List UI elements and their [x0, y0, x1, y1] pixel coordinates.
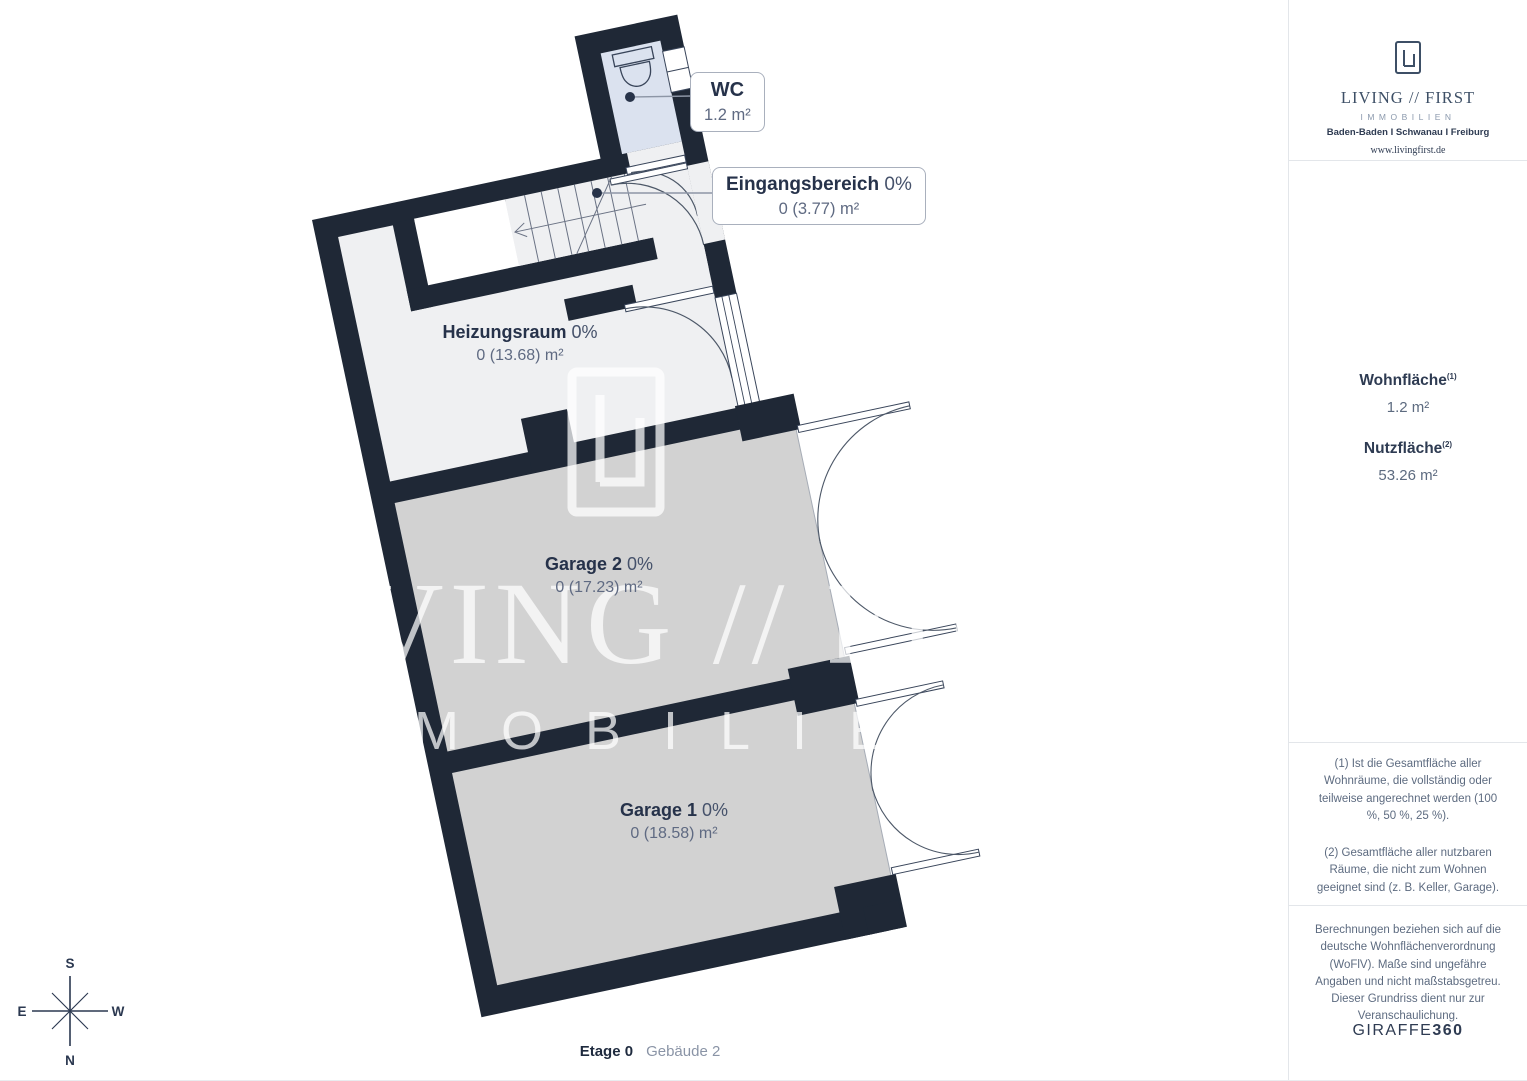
- nutzflaeche-label: Nutzfläche(2): [1289, 440, 1527, 458]
- footnote-2: (2) Gesamtfläche aller nutzbaren Räume, …: [1313, 845, 1503, 897]
- footnote-1: (1) Ist die Gesamtfläche aller Wohnräume…: [1313, 756, 1503, 825]
- agency-website: www.livingfirst.de: [1289, 145, 1527, 156]
- room-name: Garage 1: [620, 800, 697, 820]
- room-percent: 0%: [884, 174, 911, 195]
- room-name: Garage 2: [545, 554, 622, 574]
- agency-locations: Baden-Baden I Schwanau I Freiburg: [1289, 127, 1527, 138]
- nutzflaeche-text: Nutzfläche: [1364, 440, 1442, 457]
- compass-rose: S N E W: [14, 952, 126, 1070]
- agency-subtitle: IMMOBILIEN: [1289, 112, 1527, 122]
- sidebar-divider-2: [1289, 742, 1527, 743]
- room-area: 1.2 m²: [704, 105, 751, 126]
- room-area: 0 (13.68) m²: [400, 346, 640, 366]
- wohnflaeche-value: 1.2 m²: [1289, 399, 1527, 416]
- room-label-wc: WC 1.2 m²: [690, 72, 765, 132]
- room-label-eingangsbereich: Eingangsbereich 0% 0 (3.77) m²: [712, 167, 926, 225]
- giraffe-text: GIRAFFE: [1352, 1022, 1432, 1039]
- room-percent: 0%: [627, 554, 653, 574]
- room-label-garage1: Garage 1 0% 0 (18.58) m²: [554, 799, 794, 844]
- room-name: Eingangsbereich: [726, 174, 879, 195]
- compass-south: S: [65, 956, 74, 971]
- disclaimer-text: Berechnungen beziehen sich auf die deuts…: [1313, 922, 1503, 1026]
- label-leaders: [0, 0, 1288, 1080]
- plan-area: LIVING // FIRST IMMOBILIEN WC 1.2 m² Ein…: [0, 0, 1288, 1080]
- footnotes: (1) Ist die Gesamtfläche aller Wohnräume…: [1289, 756, 1527, 917]
- wohnflaeche-text: Wohnfläche: [1359, 372, 1447, 389]
- compass-east: E: [17, 1004, 26, 1019]
- floor-label: Etage 0: [580, 1043, 633, 1060]
- area-summary: Wohnfläche(1) 1.2 m² Nutzfläche(2) 53.26…: [1289, 372, 1527, 508]
- compass-west: W: [112, 1004, 125, 1019]
- wohnflaeche-label: Wohnfläche(1): [1289, 372, 1527, 390]
- sidebar-divider-1: [1289, 160, 1527, 161]
- room-name: Heizungsraum: [442, 322, 566, 342]
- compass-north: N: [65, 1053, 75, 1068]
- room-label-garage2: Garage 2 0% 0 (17.23) m²: [479, 553, 719, 598]
- agency-name: LIVING // FIRST: [1289, 88, 1527, 108]
- room-name: WC: [711, 79, 744, 101]
- floorplan-page: LIVING // FIRST IMMOBILIEN WC 1.2 m² Ein…: [0, 0, 1527, 1081]
- nutzflaeche-value: 53.26 m²: [1289, 467, 1527, 484]
- room-label-heizungsraum: Heizungsraum 0% 0 (13.68) m²: [400, 321, 640, 366]
- room-percent: 0%: [572, 322, 598, 342]
- info-sidebar: LIVING // FIRST IMMOBILIEN Baden-Baden I…: [1288, 0, 1527, 1080]
- entrance-leader-dot: [592, 188, 602, 198]
- room-area: 0 (17.23) m²: [479, 578, 719, 598]
- room-area: 0 (18.58) m²: [554, 824, 794, 844]
- agency-logo-icon: [1392, 40, 1424, 76]
- room-area: 0 (3.77) m²: [726, 199, 912, 220]
- building-label: Gebäude 2: [646, 1043, 720, 1060]
- wc-leader-dot: [625, 92, 635, 102]
- giraffe360-brand: GIRAFFE360: [1289, 1022, 1527, 1040]
- wohnflaeche-footnote-ref: (1): [1447, 372, 1457, 381]
- agency-logo: LIVING // FIRST IMMOBILIEN Baden-Baden I…: [1289, 40, 1527, 156]
- floor-caption: Etage 0Gebäude 2: [540, 1043, 760, 1060]
- nutzflaeche-footnote-ref: (2): [1442, 440, 1452, 449]
- giraffe-360: 360: [1432, 1022, 1463, 1039]
- room-percent: 0%: [702, 800, 728, 820]
